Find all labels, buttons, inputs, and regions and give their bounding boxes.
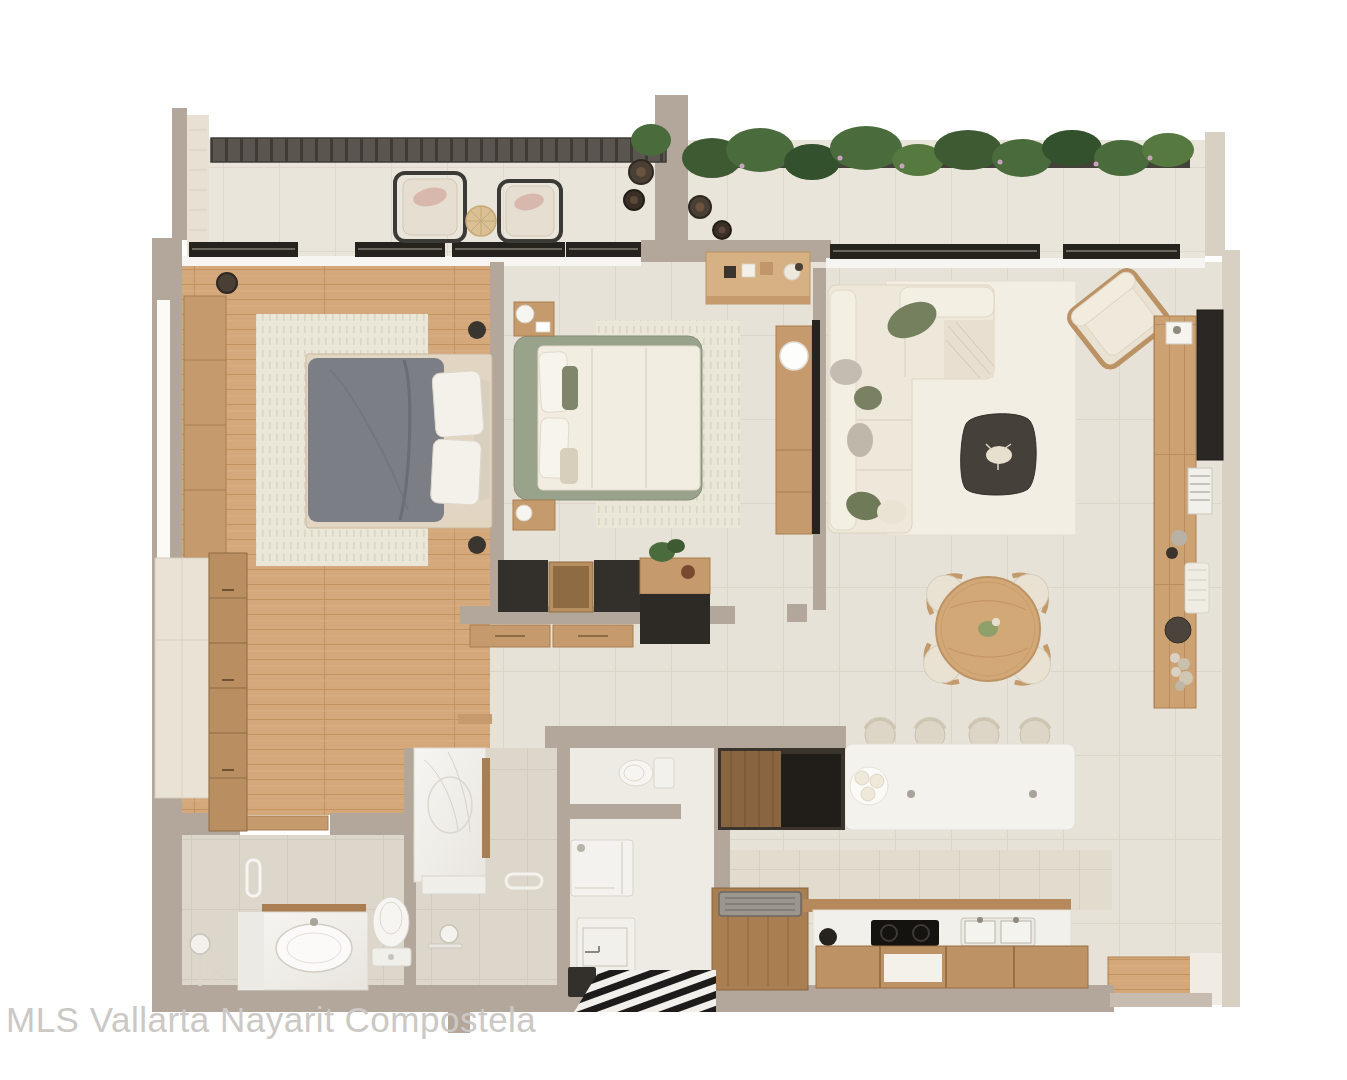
bedroom2-bed xyxy=(514,336,702,500)
lounge-chair xyxy=(499,181,561,241)
pendant-lamp-icon xyxy=(468,536,486,554)
washer xyxy=(571,840,633,896)
gray-pillow xyxy=(847,423,873,457)
sage-pillow xyxy=(854,386,882,410)
shower-bar-icon xyxy=(428,944,462,948)
kitchen-island xyxy=(845,744,1075,830)
marble-shelf xyxy=(422,876,486,894)
mirror-icon xyxy=(780,342,808,370)
window-sill-left xyxy=(182,256,641,266)
laundry-divider-wall xyxy=(567,804,681,819)
side-table-icon xyxy=(466,206,496,236)
tv-bedroom2-icon xyxy=(812,320,820,534)
pendant-lamp-icon xyxy=(468,321,486,339)
coffee-table xyxy=(961,414,1036,495)
book-stack-icon xyxy=(1188,468,1212,514)
lounge-chair xyxy=(395,173,465,241)
entry-console xyxy=(706,252,810,304)
dark-lower-cabinet xyxy=(640,594,710,644)
dining-table xyxy=(936,577,1040,681)
table-lamp-icon xyxy=(516,305,534,323)
terrace-wall-topleft xyxy=(172,108,187,240)
shower-control-icon xyxy=(440,925,458,943)
gray-pillow xyxy=(830,359,862,385)
vase-icon xyxy=(1165,617,1191,643)
dark-cabinet xyxy=(498,560,548,612)
planter-greenery-icon xyxy=(631,124,1194,180)
dark-cabinet xyxy=(594,560,640,612)
floor-plan-render: MLS Vallarta Nayarit Compostela xyxy=(0,0,1347,1080)
floor-plan-canvas xyxy=(0,0,1347,1080)
toilet-master xyxy=(372,897,411,966)
master-bath-door-threshold xyxy=(242,816,328,830)
kettle-icon xyxy=(819,928,837,946)
dresser xyxy=(209,553,247,831)
wardrobe xyxy=(184,296,226,558)
grill-unit xyxy=(712,888,808,990)
table-lamp-icon xyxy=(516,505,532,521)
pot-icon xyxy=(1166,547,1178,559)
pantry-wood-shelf xyxy=(721,751,781,827)
tall-cabinet xyxy=(155,558,209,798)
kitchen-counter xyxy=(803,899,1088,988)
watermark: MLS Vallarta Nayarit Compostela xyxy=(6,1000,536,1040)
dining-area xyxy=(913,563,1061,696)
hall-door-threshold xyxy=(458,714,492,724)
pot-icon xyxy=(1171,530,1187,546)
white-pillow xyxy=(877,500,907,524)
bedroom2-dresser xyxy=(776,326,812,534)
outer-wall-right xyxy=(1222,250,1240,1007)
pantry-dark-cabinet xyxy=(781,754,841,827)
pantry-niche xyxy=(718,748,845,830)
master-vanity xyxy=(238,904,368,990)
bed2-door-jamb xyxy=(787,604,807,622)
laundry-sink xyxy=(577,918,635,974)
window-sill-right xyxy=(826,258,1205,268)
tv-living-icon xyxy=(1197,310,1223,460)
pergola-icon xyxy=(211,138,666,162)
sage-pillow xyxy=(562,366,578,410)
accent-pillow xyxy=(560,448,578,484)
pillow xyxy=(430,439,481,505)
terrace-wall-topright xyxy=(1205,132,1225,256)
faucet-icon xyxy=(310,918,318,926)
outer-wall-bottom-right xyxy=(1110,993,1212,1007)
terrace-divider-wall xyxy=(655,95,688,252)
wood-trim xyxy=(482,758,490,858)
pantry-top-wall xyxy=(714,726,846,750)
faucet-icon xyxy=(907,790,915,798)
floor-pot-icon xyxy=(217,273,237,293)
nightstand xyxy=(514,302,554,336)
open-shelf-cabinet xyxy=(816,946,1088,988)
faucet-icon xyxy=(1029,790,1037,798)
nightstand xyxy=(513,500,555,530)
toilet-laundry xyxy=(619,758,674,788)
wood-sideboard xyxy=(640,558,710,594)
master-bath-wall-b xyxy=(330,813,404,835)
marble-shower-column xyxy=(414,748,486,882)
bedroom1-bed xyxy=(306,354,492,528)
pillow xyxy=(432,370,484,437)
